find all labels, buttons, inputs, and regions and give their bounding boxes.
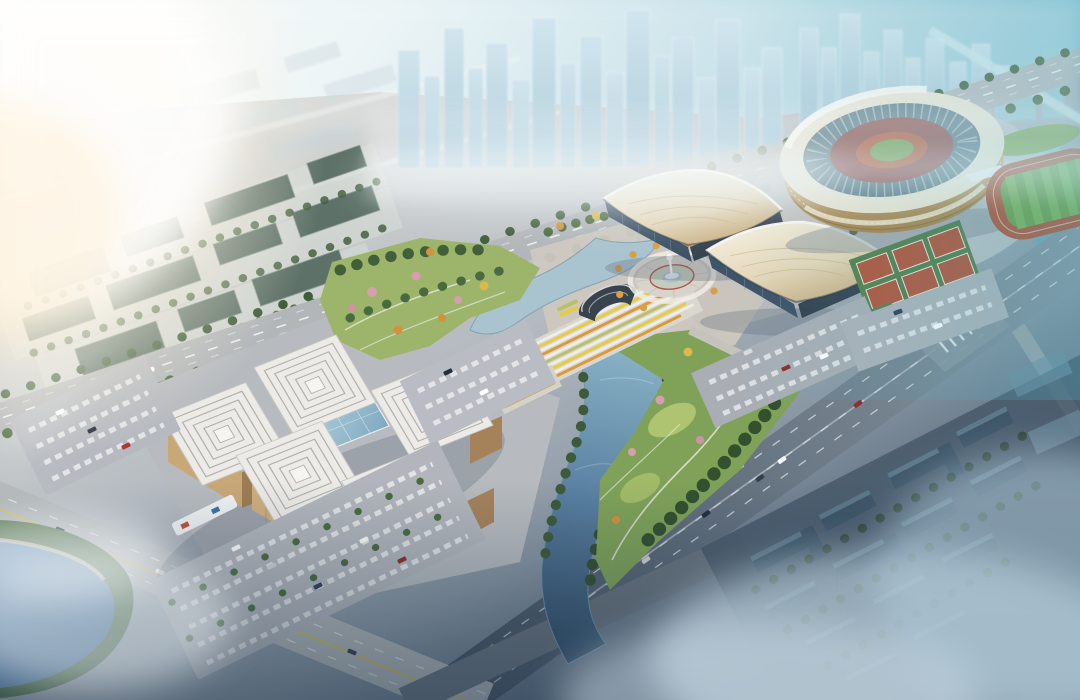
aerial-rendering: [0, 0, 1080, 700]
aerial-rendering-stage: [0, 0, 1080, 700]
top-haze: [0, 0, 1080, 130]
